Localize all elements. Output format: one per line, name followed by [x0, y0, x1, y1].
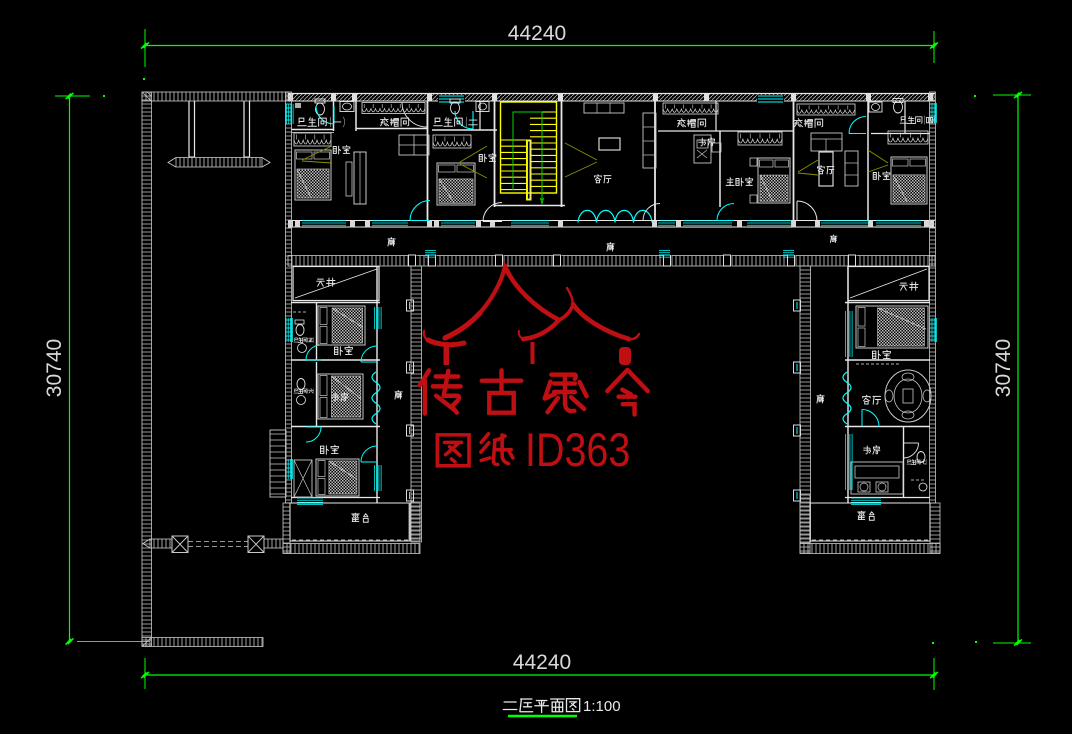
svg-text:ID363: ID363 [525, 425, 630, 477]
svg-text:44240: 44240 [508, 22, 566, 45]
svg-text:1:100: 1:100 [583, 698, 621, 715]
svg-text:30740: 30740 [992, 339, 1015, 397]
svg-text:44240: 44240 [513, 651, 571, 674]
svg-text:30740: 30740 [43, 339, 66, 397]
